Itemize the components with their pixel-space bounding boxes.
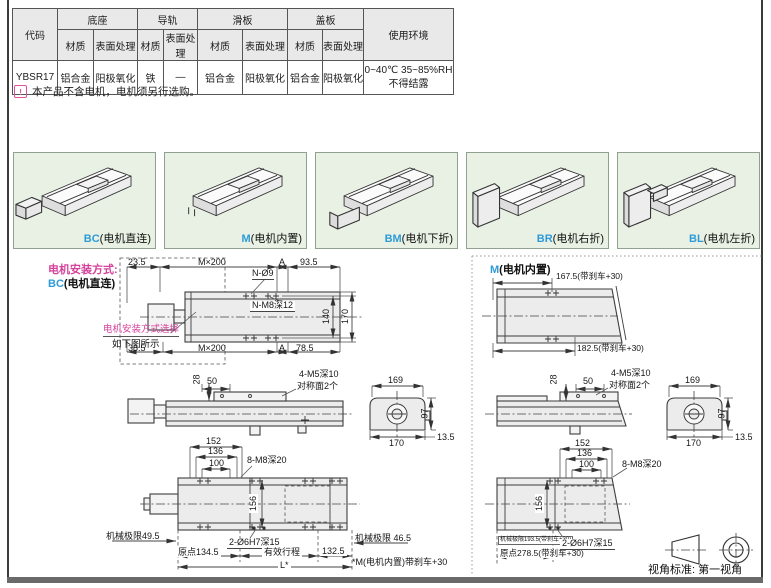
dim-label: 13.5 [733, 433, 755, 442]
actuator-isometric-bl [618, 153, 759, 233]
product-code: BL [689, 233, 704, 245]
actuator-isometric-br [467, 153, 608, 233]
dim-label: 136 [577, 449, 592, 458]
header-environment: 使用环境 [364, 9, 454, 61]
dim-label: 152 [575, 439, 590, 448]
product-card-br: BR(电机右折) [466, 152, 609, 249]
header-base: 底座 [58, 9, 138, 30]
dim-label: 38.5 [128, 344, 146, 353]
exclamation-icon: ! [14, 85, 27, 98]
dim-label: L* [278, 561, 291, 570]
cell-cover-surface: 阳极氧化 [323, 61, 364, 95]
environment-line2: 不得结露 [364, 78, 453, 92]
product-card-bc: BC(电机直连) [13, 152, 156, 249]
m-cross-section [667, 386, 744, 440]
dim-label: N-Ø9 [252, 269, 274, 280]
dim-label: 136 [208, 447, 223, 456]
spec-table: 代码 底座 导轨 滑板 盖板 使用环境 材质 表面处理 材质 表面处理 材质 表… [12, 8, 454, 95]
bc-cross-section [370, 386, 447, 440]
product-name: (电机内置) [251, 233, 302, 245]
product-card-bm: BM(电机下折) [315, 152, 458, 249]
dim-label: 对称面2个 [609, 381, 650, 390]
subheader-material: 材质 [58, 30, 94, 61]
dim-label: 8-M8深20 [622, 460, 662, 469]
dim-label: 170 [341, 309, 350, 324]
product-name: (电机直连) [100, 233, 151, 245]
dim-label: 156 [249, 494, 258, 513]
dim-label: 原点134.5 [176, 548, 221, 557]
m-code-name: (电机内置) [499, 264, 550, 276]
dim-label: 167.5(带刹车+30) [556, 272, 623, 281]
subheader-surface: 表面处理 [94, 30, 138, 61]
product-label: M(电机内置) [242, 230, 303, 246]
product-label: BL(电机左折) [689, 230, 755, 246]
header-slider: 滑板 [198, 9, 288, 30]
product-code: M [242, 233, 251, 245]
product-name: (电机下折) [402, 233, 453, 245]
dim-label: 4-M5深10 [299, 370, 339, 379]
dim-label: N-M8深12 [250, 301, 295, 312]
subheader-material: 材质 [198, 30, 243, 61]
product-code: BM [385, 233, 402, 245]
cell-slider-material: 铝合金 [198, 61, 243, 95]
header-cover: 盖板 [288, 9, 364, 30]
actuator-isometric-bm [316, 153, 457, 233]
dim-label: 50 [207, 377, 217, 386]
product-gallery: BC(电机直连) M(电机内置) BM(电机下折) BR(电机右折) [13, 152, 762, 249]
product-label: BR(电机右折) [537, 230, 604, 246]
m-mounting-code: M(电机内置) [490, 261, 551, 277]
dim-label: 170 [686, 439, 701, 448]
dim-label: 50 [583, 377, 593, 386]
bc-top-view [112, 447, 408, 572]
dim-label: 28 [193, 374, 202, 384]
dim-label: 对称面2个 [297, 382, 338, 391]
dim-label: 156 [535, 494, 544, 513]
product-code: BR [537, 233, 553, 245]
subheader-material: 材质 [138, 30, 164, 61]
dim-label: 152 [206, 437, 221, 446]
dim-label: 140 [322, 309, 331, 324]
dim-label: 2-Ø6H7深15 [560, 539, 615, 550]
dim-label: A [279, 258, 285, 267]
dim-label: 原点278.5(带刹车+30) [498, 549, 586, 558]
motor-note-text: 本产品不含电机，电机须另行选购。 [32, 84, 200, 99]
dim-label: 100 [579, 460, 594, 469]
page-border-left [7, 0, 9, 577]
page-border-right [761, 0, 763, 577]
dim-label: 93.5 [300, 258, 318, 267]
dim-label: 169 [685, 376, 700, 385]
bc-code: BC [48, 278, 64, 290]
mounting-selector-note: 电机安装方式选择 [103, 321, 179, 337]
product-card-m: M(电机内置) [164, 152, 307, 249]
dim-label: 97 [421, 408, 430, 418]
actuator-isometric-bc [14, 153, 155, 233]
bc-mounting-code: BC(电机直连) [48, 275, 115, 291]
page-border-bottom [7, 577, 763, 583]
dim-label: 97 [718, 408, 727, 418]
projection-label: 视角标准: [648, 564, 695, 576]
dim-label: 有效行程 [262, 548, 302, 557]
header-rail: 导轨 [138, 9, 198, 30]
subheader-surface: 表面处理 [323, 30, 364, 61]
dim-label: 100 [209, 459, 224, 468]
dim-label: A [279, 344, 285, 353]
subheader-surface: 表面处理 [243, 30, 288, 61]
environment-line1: 0~40℃ 35~85%RH [364, 64, 453, 78]
dim-label: 23.5 [128, 258, 146, 267]
footnote-label: *M(电机内置)带刹车+30 [352, 558, 447, 567]
dim-label: 4-M5深10 [611, 369, 651, 378]
dim-label: 机械极限 46.5 [355, 534, 411, 543]
product-name: (电机左折) [704, 233, 755, 245]
dim-label: 169 [388, 376, 403, 385]
bc-code-name: (电机直连) [64, 278, 115, 290]
product-name: (电机右折) [553, 233, 604, 245]
m-code: M [490, 264, 499, 276]
product-label: BM(电机下折) [385, 230, 453, 246]
header-code: 代码 [13, 9, 58, 61]
dim-label: 8-M8深20 [247, 456, 287, 465]
projection-value: 第一视角 [698, 564, 742, 576]
cell-environment: 0~40℃ 35~85%RH 不得结露 [364, 61, 454, 95]
projection-standard-label: 视角标准: 第一视角 [648, 561, 742, 577]
m-side-view [485, 384, 632, 434]
dim-label: 132.5 [320, 547, 347, 556]
dim-label: 78.5 [296, 344, 314, 353]
product-label: BC(电机直连) [84, 230, 151, 246]
subheader-surface: 表面处理 [164, 30, 198, 61]
product-code: BC [84, 233, 100, 245]
subheader-material: 材质 [288, 30, 323, 61]
product-card-bl: BL(电机左折) [617, 152, 760, 249]
motor-note: ! 本产品不含电机，电机须另行选购。 [14, 84, 200, 99]
cell-cover-material: 铝合金 [288, 61, 323, 95]
actuator-isometric-m [165, 153, 306, 233]
catalog-page: { "colors":{"magenta":"#d6429b","blue":"… [0, 0, 771, 588]
dim-label: M×200 [198, 344, 226, 353]
dim-label: 28 [550, 374, 559, 384]
dim-label: 机械极限49.5 [106, 532, 160, 541]
cell-slider-surface: 阳极氧化 [243, 61, 288, 95]
dim-label: 182.5(带刹车+30) [577, 344, 644, 353]
bc-side-view [128, 384, 352, 435]
dim-label: M×200 [198, 258, 226, 267]
dim-label: 170 [389, 439, 404, 448]
dim-label: 13.5 [435, 433, 457, 442]
